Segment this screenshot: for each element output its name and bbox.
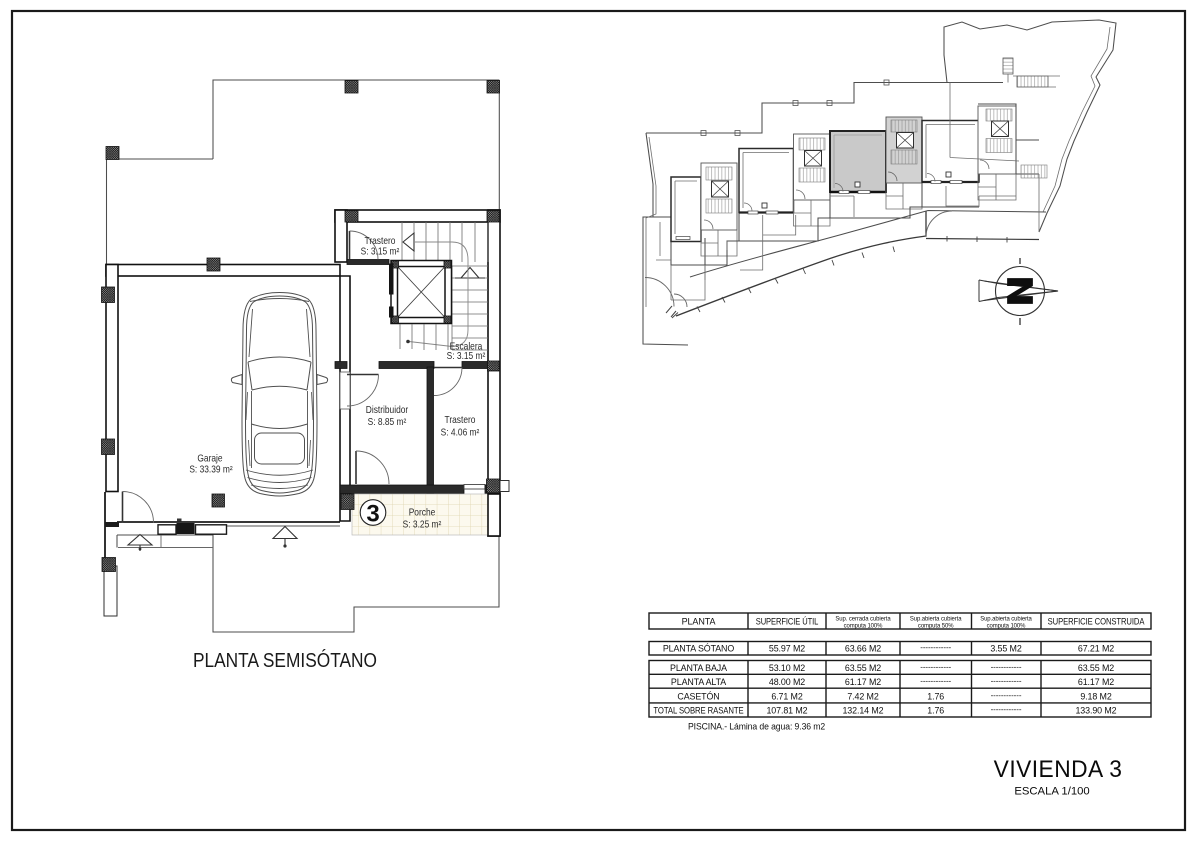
- svg-text:S: 3.25 m²: S: 3.25 m²: [403, 519, 442, 530]
- svg-text:PLANTA BAJA: PLANTA BAJA: [670, 663, 727, 673]
- svg-text:3.55 M2: 3.55 M2: [990, 644, 1022, 654]
- svg-text:CASETÓN: CASETÓN: [677, 692, 719, 702]
- svg-text:55.97 M2: 55.97 M2: [769, 644, 805, 654]
- svg-text:S: 8.85 m²: S: 8.85 m²: [368, 416, 407, 427]
- svg-text:SUPERFICIE ÚTIL: SUPERFICIE ÚTIL: [756, 616, 819, 627]
- svg-text:Trastero: Trastero: [365, 235, 396, 246]
- svg-text:computa 100%: computa 100%: [987, 622, 1026, 629]
- svg-text:PLANTA: PLANTA: [682, 617, 716, 627]
- svg-text:61.17 M2: 61.17 M2: [845, 677, 881, 687]
- svg-text:------------: ------------: [920, 643, 951, 652]
- svg-text:Distribuidor: Distribuidor: [366, 404, 408, 415]
- svg-text:1.76: 1.76: [927, 692, 944, 702]
- svg-text:S: 3.15 m²: S: 3.15 m²: [447, 350, 486, 361]
- svg-text:63.66 M2: 63.66 M2: [845, 644, 881, 654]
- svg-text:VIVIENDA 3: VIVIENDA 3: [994, 756, 1123, 783]
- svg-text:3: 3: [366, 501, 379, 528]
- svg-text:6.71 M2: 6.71 M2: [771, 692, 803, 702]
- svg-text:SUPERFICIE CONSTRUIDA: SUPERFICIE CONSTRUIDA: [1048, 616, 1145, 627]
- svg-text:------------: ------------: [920, 663, 951, 672]
- svg-text:TOTAL SOBRE RASANTE: TOTAL SOBRE RASANTE: [653, 705, 744, 716]
- svg-text:63.55 M2: 63.55 M2: [1078, 663, 1114, 673]
- svg-text:63.55 M2: 63.55 M2: [845, 663, 881, 673]
- svg-text:------------: ------------: [920, 677, 951, 686]
- svg-text:PLANTA ALTA: PLANTA ALTA: [671, 677, 726, 687]
- svg-text:67.21 M2: 67.21 M2: [1078, 644, 1114, 654]
- svg-text:Porche: Porche: [409, 507, 436, 518]
- svg-text:S: 4.06 m²: S: 4.06 m²: [441, 427, 480, 438]
- svg-text:------------: ------------: [991, 705, 1022, 714]
- svg-text:PLANTA SÓTANO: PLANTA SÓTANO: [663, 644, 735, 654]
- svg-text:1.76: 1.76: [927, 706, 944, 716]
- svg-text:7.42 M2: 7.42 M2: [847, 692, 879, 702]
- svg-text:------------: ------------: [991, 677, 1022, 686]
- svg-text:133.90 M2: 133.90 M2: [1075, 706, 1116, 716]
- svg-text:------------: ------------: [991, 691, 1022, 700]
- svg-text:------------: ------------: [991, 663, 1022, 672]
- svg-text:S: 3.15 m²: S: 3.15 m²: [361, 246, 400, 257]
- svg-text:53.10 M2: 53.10 M2: [769, 663, 805, 673]
- svg-text:132.14 M2: 132.14 M2: [842, 706, 883, 716]
- svg-text:9.18 M2: 9.18 M2: [1080, 692, 1112, 702]
- svg-text:computa 100%: computa 100%: [844, 622, 883, 629]
- svg-text:Trastero: Trastero: [445, 414, 476, 425]
- svg-text:PISCINA.- Lámina de agua: 9.36: PISCINA.- Lámina de agua: 9.36 m2: [688, 721, 825, 731]
- svg-text:ESCALA 1/100: ESCALA 1/100: [1014, 786, 1089, 798]
- svg-text:computa 50%: computa 50%: [918, 622, 954, 629]
- svg-text:61.17 M2: 61.17 M2: [1078, 677, 1114, 687]
- svg-text:PLANTA SEMISÓTANO: PLANTA SEMISÓTANO: [193, 649, 377, 673]
- svg-text:S: 33.39 m²: S: 33.39 m²: [189, 464, 232, 475]
- svg-text:107.81 M2: 107.81 M2: [766, 706, 807, 716]
- svg-text:Garaje: Garaje: [197, 453, 222, 464]
- svg-text:48.00 M2: 48.00 M2: [769, 677, 805, 687]
